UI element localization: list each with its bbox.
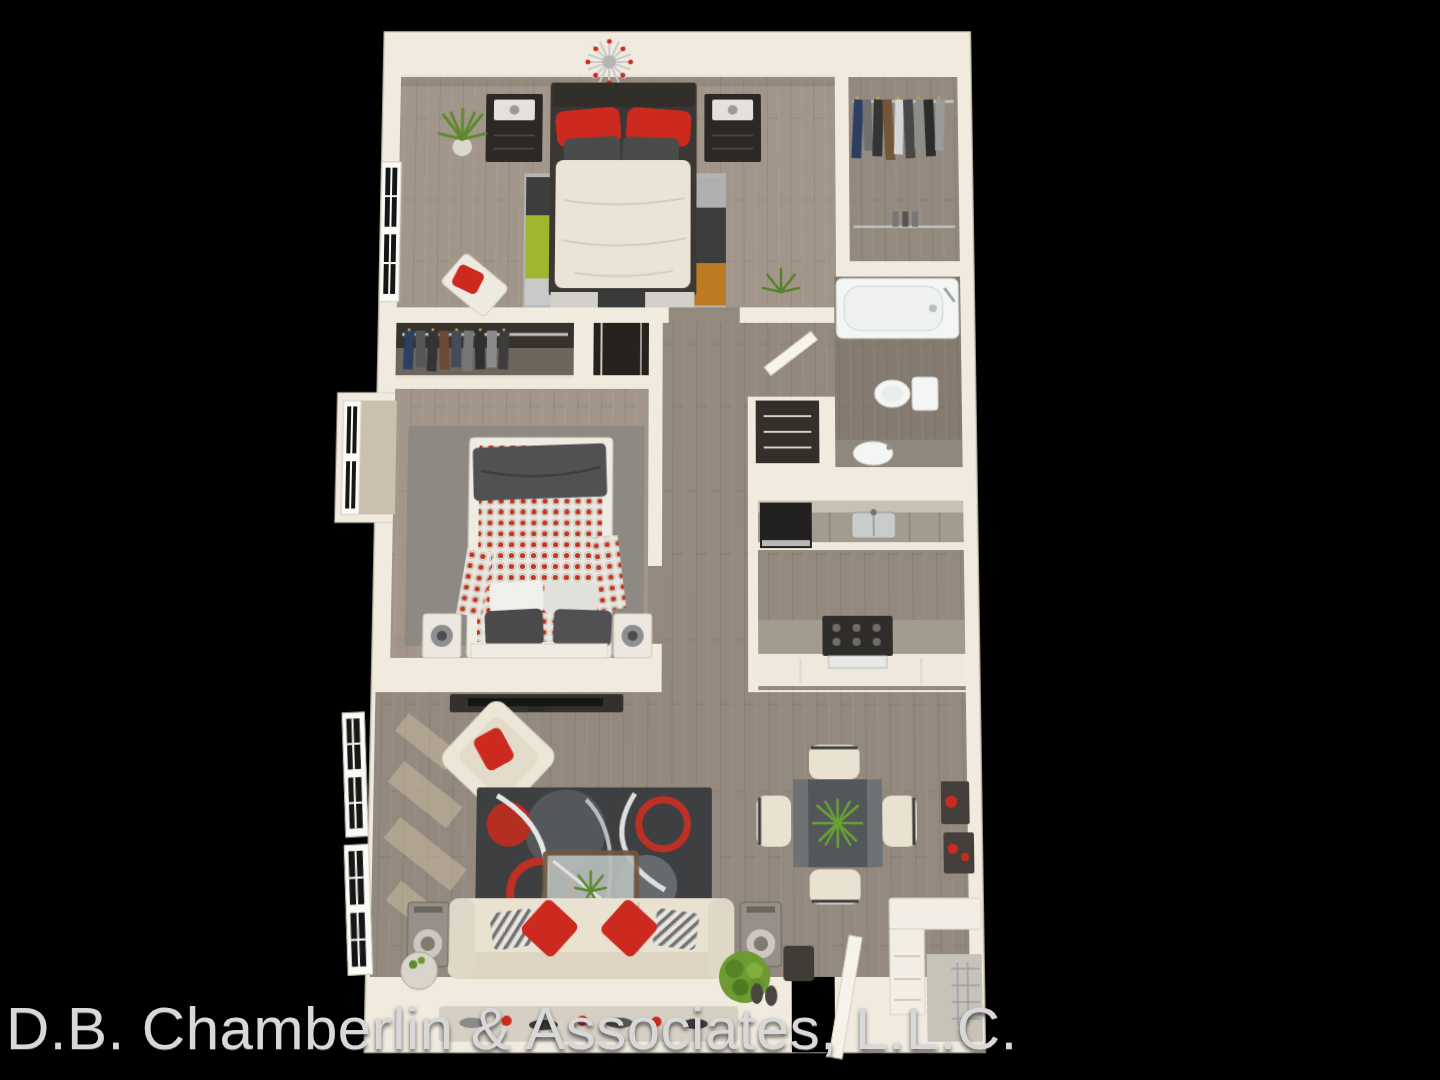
sink-faucet <box>886 445 891 450</box>
hallway-planks <box>662 323 749 692</box>
floor-plan-svg <box>0 21 1440 1080</box>
hanging-clothes-upper <box>851 96 946 160</box>
bed2-speaker-right <box>613 614 651 658</box>
sofa <box>448 898 735 980</box>
bed2-pillow-dark-left <box>484 608 544 647</box>
bathtub <box>836 279 959 339</box>
appliance-handle <box>762 540 810 546</box>
dining-chair-east <box>882 796 917 847</box>
duvet <box>555 160 691 288</box>
kitchen-sink <box>852 509 896 538</box>
sofa-arm-left <box>448 898 476 979</box>
dining-chair-west <box>756 796 791 847</box>
floor-plan-image: D.B. Chamberlin & Associates, L.L.C. <box>0 0 1440 1080</box>
kitchen-peninsula <box>758 616 966 686</box>
headboard <box>552 83 694 107</box>
closet2-clothes <box>403 328 510 371</box>
dark-planter <box>783 946 814 981</box>
foot-bench-runner <box>598 292 645 307</box>
bedroom2-bed <box>456 438 628 658</box>
bed2-footboard <box>471 644 608 658</box>
watermark-text: D.B. Chamberlin & Associates, L.L.C. <box>6 994 1436 1063</box>
tv-stand-base <box>528 706 544 711</box>
bay-window <box>341 401 361 515</box>
nightstand-left <box>485 94 542 162</box>
wall-shelf-upper <box>941 781 970 824</box>
bay-niche-floor <box>357 401 397 515</box>
side-table <box>400 952 437 989</box>
vanity-sink <box>835 440 962 467</box>
oven-door <box>829 656 887 668</box>
bed2-speaker-left <box>422 614 461 658</box>
apartment-3d-plan <box>0 21 1440 1080</box>
wall-shelf-lower <box>943 832 974 873</box>
kitchen-top-counter <box>758 501 964 550</box>
stripe-pillow-right <box>652 908 700 951</box>
bed2-pillow-dark-right <box>553 609 613 647</box>
master-window <box>379 162 401 302</box>
dining-table <box>793 779 883 867</box>
dining-chair-south <box>810 869 861 904</box>
sofa-back <box>448 952 735 979</box>
range <box>822 616 893 668</box>
dining-chair-north <box>809 745 860 780</box>
nightstand-right <box>704 94 761 162</box>
hanging-clothes-lower <box>892 211 918 226</box>
tv-console <box>450 694 624 712</box>
master-bed <box>549 83 697 308</box>
